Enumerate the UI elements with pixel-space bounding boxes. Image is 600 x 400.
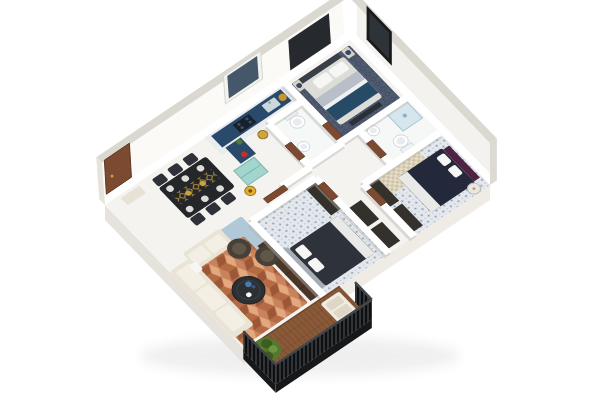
- wall-end-cap-east: [490, 139, 497, 186]
- floor-plan-render: [0, 0, 600, 400]
- floor-plan-stage: [0, 0, 600, 400]
- door-handle: [111, 175, 114, 178]
